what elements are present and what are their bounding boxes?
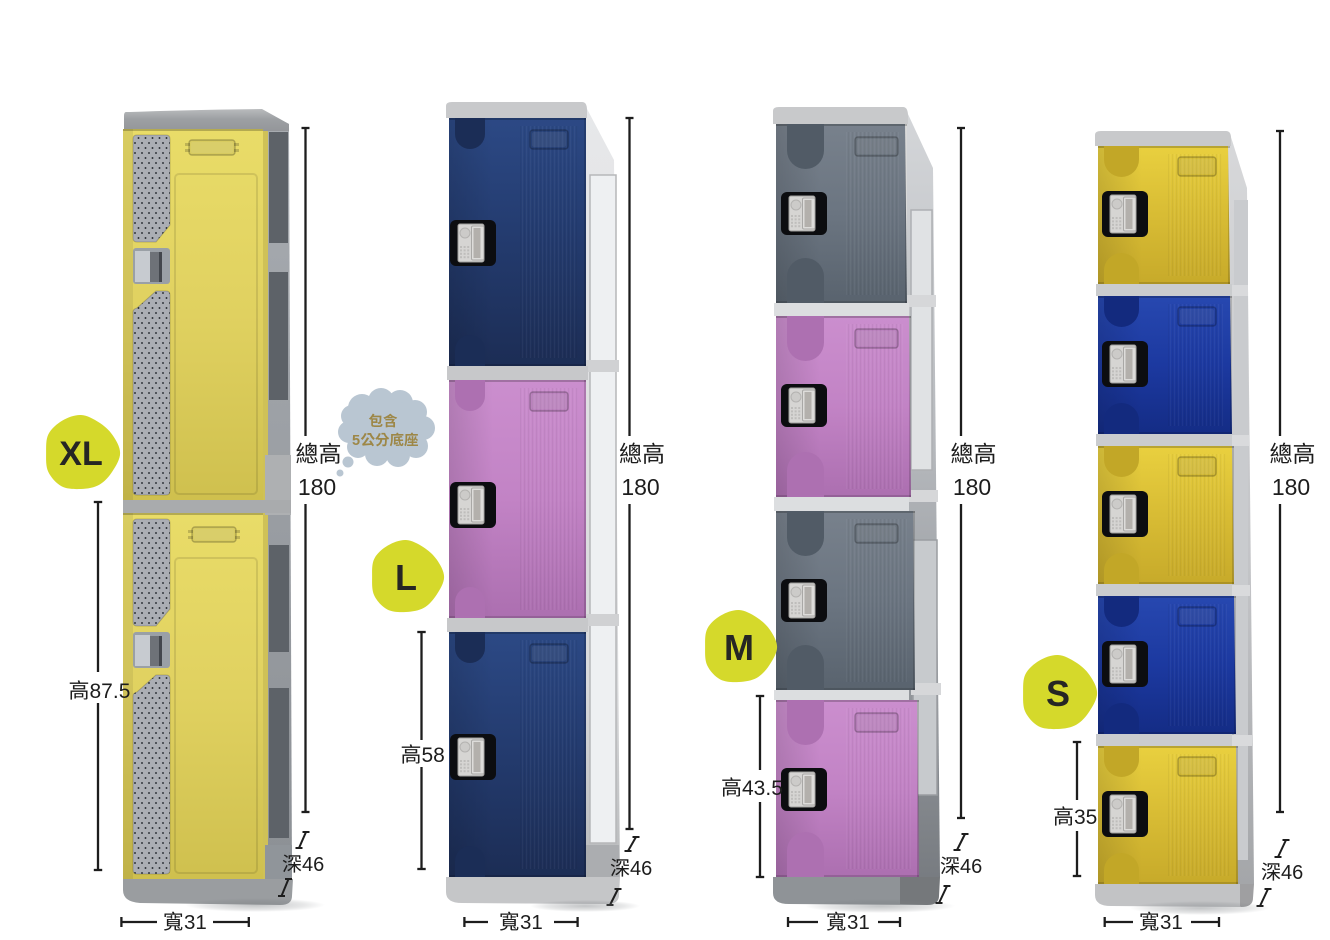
svg-text:180: 180	[953, 474, 991, 500]
svg-text:87.5: 87.5	[90, 680, 131, 703]
svg-text:35: 35	[1074, 806, 1097, 829]
svg-text:5: 5	[352, 433, 360, 449]
svg-text:L: L	[395, 557, 417, 598]
svg-text:31: 31	[520, 911, 543, 934]
svg-text:M: M	[724, 627, 754, 668]
svg-text:31: 31	[184, 911, 207, 934]
svg-text:46: 46	[302, 854, 324, 876]
svg-text:46: 46	[1281, 862, 1303, 884]
svg-text:46: 46	[960, 856, 982, 878]
svg-text:46: 46	[630, 858, 652, 880]
svg-text:S: S	[1046, 673, 1070, 714]
svg-text:58: 58	[422, 744, 445, 767]
svg-text:43.5: 43.5	[742, 777, 783, 800]
svg-text:XL: XL	[59, 435, 102, 473]
svg-text:180: 180	[621, 474, 659, 500]
svg-text:180: 180	[298, 474, 336, 500]
svg-text:31: 31	[847, 911, 870, 934]
svg-text:180: 180	[1272, 474, 1310, 500]
